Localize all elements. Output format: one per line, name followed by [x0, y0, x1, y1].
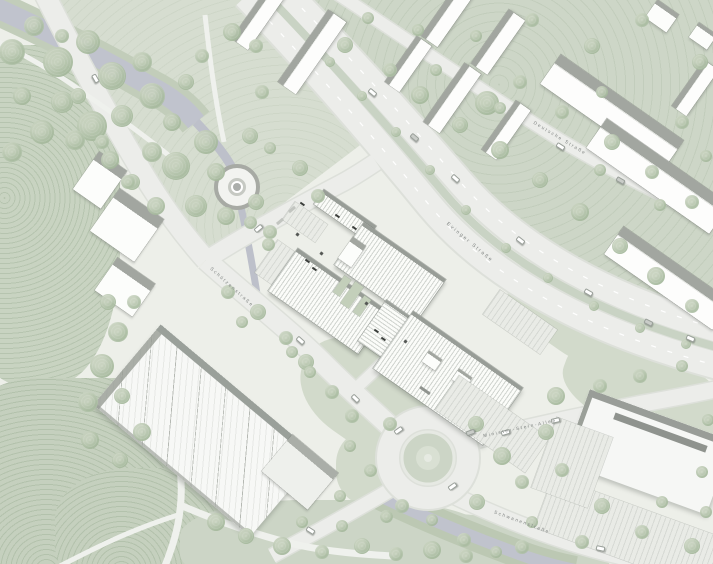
car-icon — [409, 132, 419, 142]
car-icon — [393, 425, 403, 434]
car-icon — [595, 545, 605, 552]
car-icon — [447, 481, 457, 490]
cars — [0, 0, 713, 564]
car-icon — [253, 223, 263, 233]
car-icon — [350, 393, 360, 403]
car-icon — [515, 235, 525, 244]
car-icon — [465, 428, 475, 436]
car-icon — [305, 525, 315, 534]
site-plan-canvas: Evinger Straße Deutsche Straße Schützens… — [0, 0, 713, 564]
car-icon — [295, 335, 305, 345]
car-icon — [450, 173, 460, 183]
car-icon — [643, 318, 653, 327]
car-icon — [583, 288, 593, 297]
car-icon — [615, 176, 625, 185]
car-icon — [91, 73, 100, 83]
car-icon — [685, 334, 695, 342]
car-icon — [367, 87, 377, 97]
